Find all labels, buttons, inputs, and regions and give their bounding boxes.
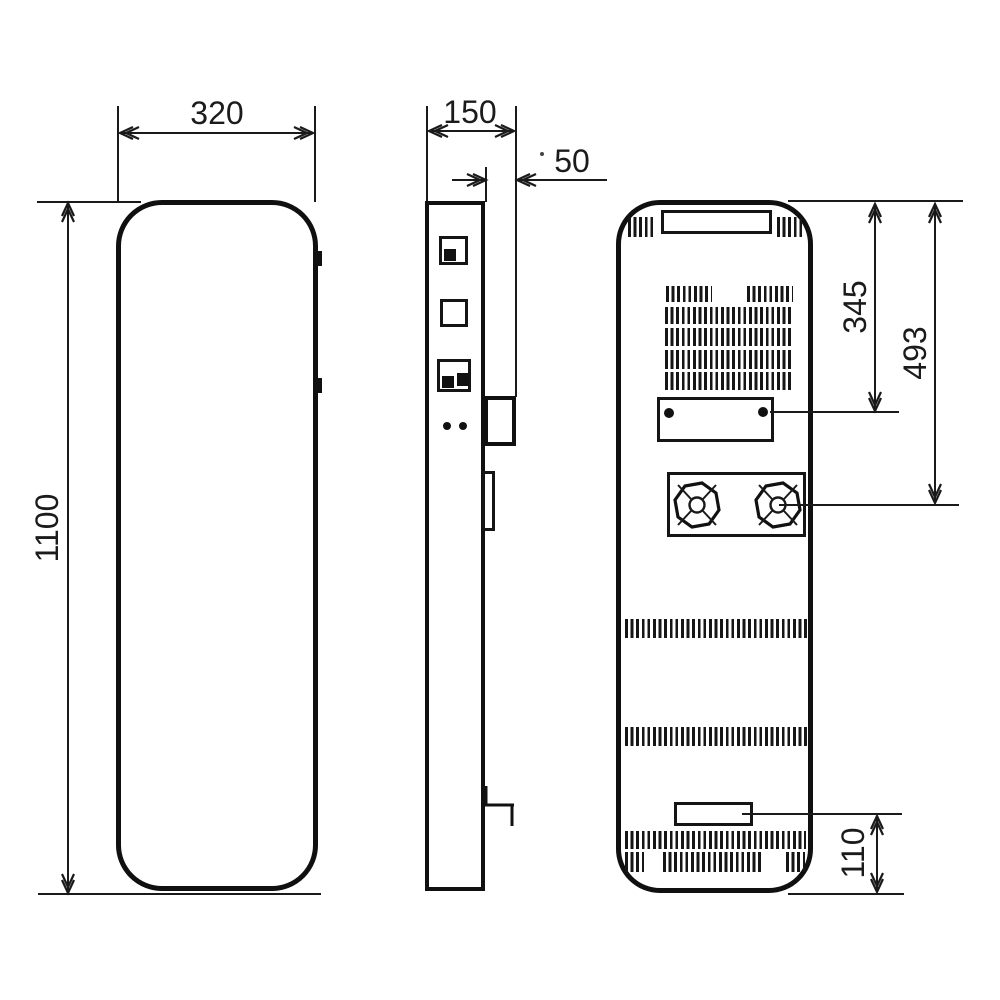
back-mounting-plate xyxy=(657,397,774,442)
back-upper-vent-row xyxy=(666,286,712,302)
back-upper-vent-row xyxy=(665,350,793,369)
back-top-label-plate xyxy=(661,210,772,234)
side-button-upper-inner-square xyxy=(444,249,456,261)
back-bottom-vent-group xyxy=(663,852,764,872)
dimension-plate-offset-label: 345 xyxy=(837,252,873,362)
back-top-vent-left xyxy=(628,217,654,237)
front-edge-button-tab-lower xyxy=(316,378,322,393)
dimension-fan-offset-label: 493 xyxy=(897,298,933,408)
dimension-outlet-offset-label: 110 xyxy=(835,798,871,908)
dimension-bracket-depth-label: 50 xyxy=(544,143,600,179)
dimension-height-label: 1100 xyxy=(29,453,65,603)
back-bottom-vent-group xyxy=(786,852,805,872)
back-view-outline xyxy=(616,200,813,893)
back-bottom-vent-group xyxy=(625,852,644,872)
back-upper-vent-row xyxy=(665,328,793,346)
side-wall-bracket xyxy=(484,396,516,446)
front-view-outline xyxy=(116,200,318,891)
dimension-width-label: 320 xyxy=(182,95,252,131)
side-button-lower-inner-square-right xyxy=(457,373,469,386)
side-bottom-hook xyxy=(483,786,514,826)
dimension-depth-label: 150 xyxy=(435,94,505,130)
back-middle-vent-strip xyxy=(625,619,807,638)
back-top-vent-right xyxy=(777,217,803,237)
back-upper-vent-row xyxy=(747,286,793,302)
back-outlet-box xyxy=(674,802,753,826)
back-middle-vent-strip xyxy=(625,727,807,746)
back-upper-vent-row xyxy=(665,307,793,324)
side-indicator-dot-left xyxy=(443,422,451,430)
side-indicator-dot-right xyxy=(459,422,467,430)
back-bottom-vent-row xyxy=(625,831,806,849)
back-fan-box xyxy=(667,472,806,537)
technical-drawing-canvas: 320 150 50 1100 345 493 110 xyxy=(0,0,1000,1000)
side-button-lower-inner-square-left xyxy=(442,376,454,388)
side-button-middle xyxy=(440,299,468,327)
side-handle xyxy=(482,471,495,531)
back-upper-vent-row xyxy=(665,372,793,390)
front-edge-button-tab-upper xyxy=(316,251,322,266)
